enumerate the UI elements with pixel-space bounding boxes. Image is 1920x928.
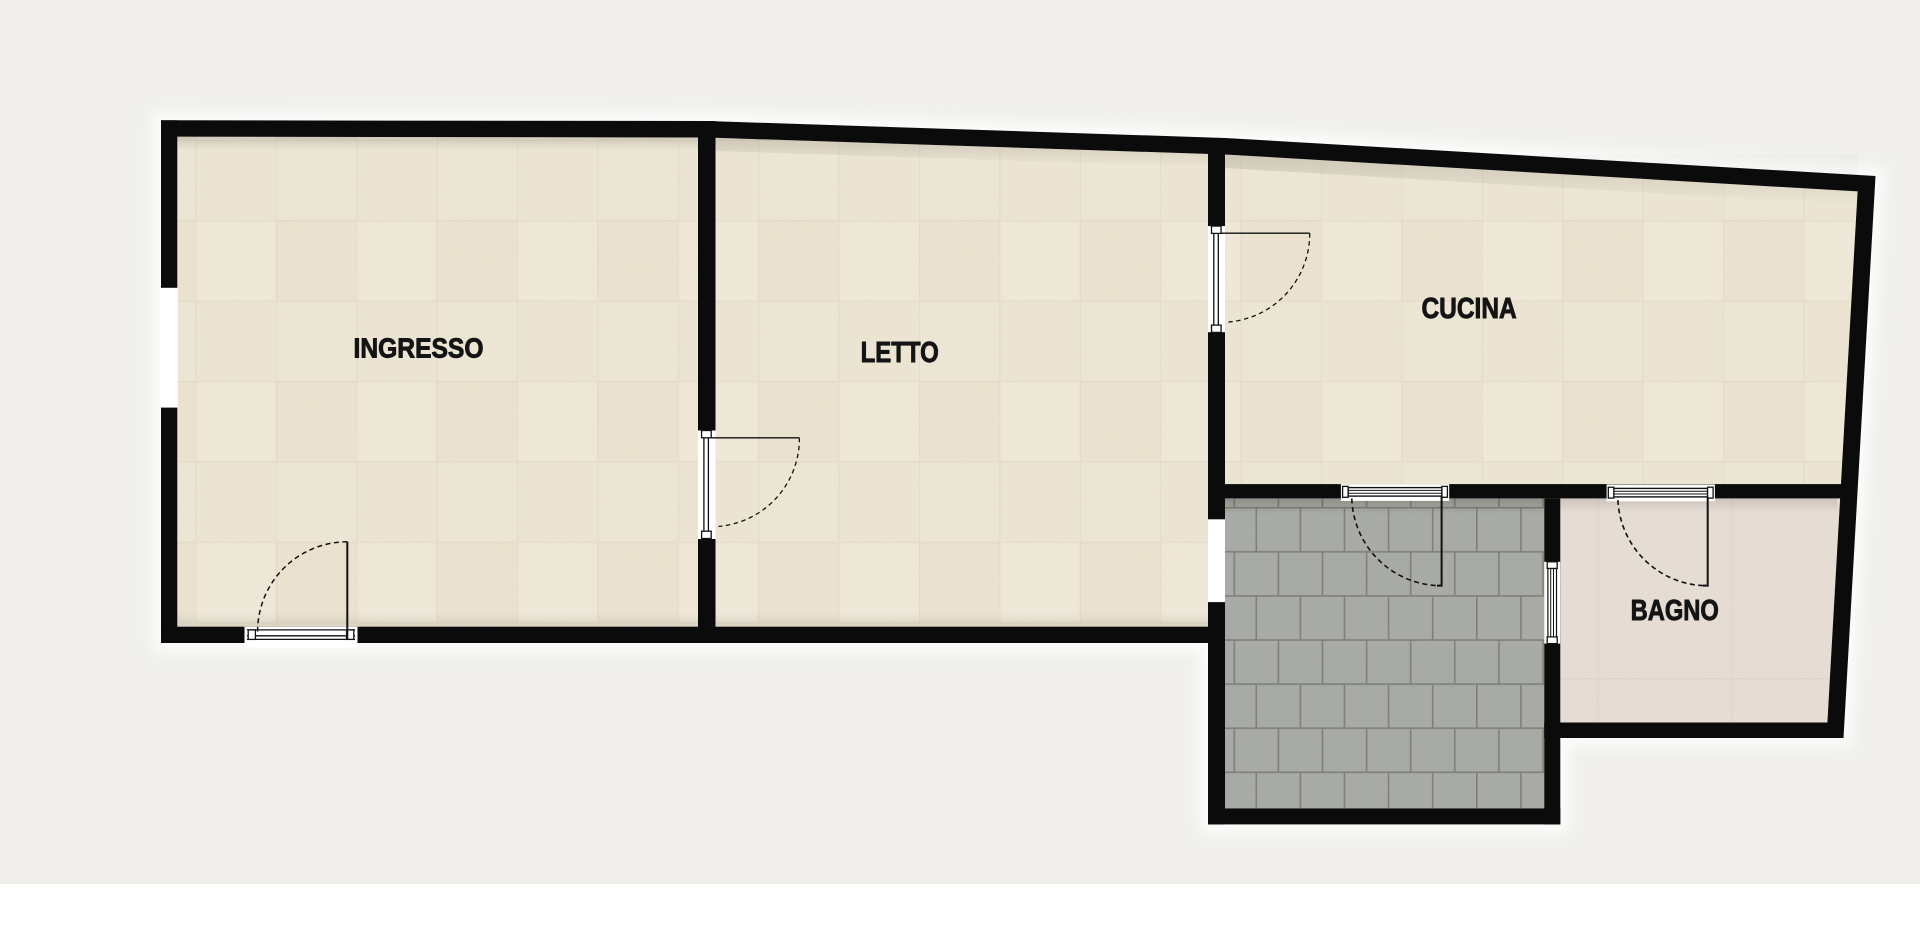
svg-text:CUCINA: CUCINA [1422, 293, 1517, 325]
svg-text:INGRESSO: INGRESSO [354, 333, 484, 364]
svg-text:LETTO: LETTO [861, 337, 939, 369]
svg-text:BAGNO: BAGNO [1631, 595, 1719, 627]
